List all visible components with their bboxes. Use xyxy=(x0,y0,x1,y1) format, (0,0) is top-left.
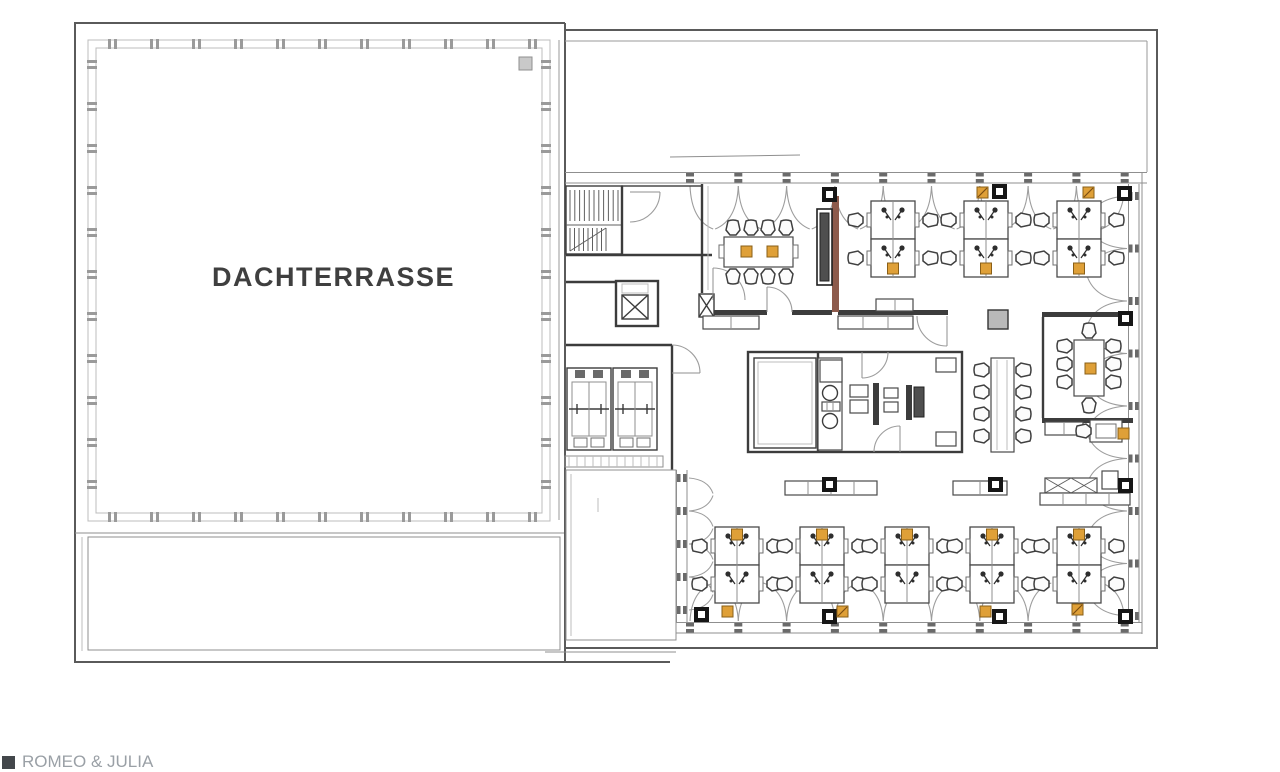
chair-icon xyxy=(1109,251,1124,265)
oven xyxy=(850,385,868,397)
chair-icon xyxy=(1106,339,1121,353)
facade-band xyxy=(676,623,1142,634)
kitchen-appliance xyxy=(914,387,924,417)
chair-icon xyxy=(1109,577,1124,591)
wc-units xyxy=(565,368,663,467)
orange-marker xyxy=(817,529,828,540)
chair-icon xyxy=(779,269,793,284)
brand-name: ROMEO & JULIA xyxy=(22,752,153,772)
orange-marker xyxy=(1074,263,1085,274)
chair-icon xyxy=(974,385,989,399)
chair-icon xyxy=(1016,363,1031,377)
chair-icon xyxy=(761,269,775,284)
column xyxy=(822,187,837,202)
chair-icon xyxy=(779,220,793,235)
chair-icon xyxy=(974,429,989,443)
chair-icon xyxy=(848,251,863,265)
oven xyxy=(850,400,868,413)
column xyxy=(992,184,1007,199)
orange-marker xyxy=(981,263,992,274)
facade-band xyxy=(565,173,1147,184)
orange-marker-hatched xyxy=(1083,187,1094,198)
core-lower-room xyxy=(566,470,676,640)
orange-marker xyxy=(767,246,778,257)
long-table-area xyxy=(974,358,1031,452)
facade-band xyxy=(1129,184,1140,622)
chair-icon xyxy=(1016,213,1031,227)
chair-icon xyxy=(726,220,740,235)
column xyxy=(822,477,837,492)
chair-icon xyxy=(923,251,938,265)
chair-icon xyxy=(1016,429,1031,443)
orange-marker xyxy=(741,246,752,257)
terrace-label: DACHTERRASSE xyxy=(212,262,455,293)
chair-icon xyxy=(848,213,863,227)
chair-icon xyxy=(1057,339,1072,353)
column xyxy=(1117,186,1132,201)
chair-icon xyxy=(1034,577,1049,591)
chair-icon xyxy=(1057,375,1072,389)
chair-icon xyxy=(692,577,707,591)
chair-icon xyxy=(947,577,962,591)
chair-icon xyxy=(1109,213,1124,227)
printer-device xyxy=(1096,424,1116,438)
chair-icon xyxy=(726,269,740,284)
chair-icon xyxy=(1109,539,1124,553)
orange-marker xyxy=(1118,428,1129,439)
chair-icon xyxy=(1034,539,1049,553)
column xyxy=(1118,478,1133,493)
orange-marker xyxy=(888,263,899,274)
printer-station xyxy=(1045,420,1122,442)
orange-marker-hatched xyxy=(977,187,988,198)
stair-flight-lower xyxy=(570,228,606,251)
chair-icon xyxy=(1016,407,1031,421)
chair-icon xyxy=(777,539,792,553)
column xyxy=(694,607,709,622)
wc-unit xyxy=(567,368,611,450)
chair-icon xyxy=(862,577,877,591)
chair-icon xyxy=(1057,357,1072,371)
stair-core xyxy=(566,186,712,255)
orange-marker xyxy=(1085,363,1096,374)
chair-icon xyxy=(777,577,792,591)
chair-icon xyxy=(923,213,938,227)
chair-icon xyxy=(744,220,758,235)
orange-marker xyxy=(902,529,913,540)
chair-icon xyxy=(1106,357,1121,371)
column xyxy=(988,477,1003,492)
orange-marker xyxy=(980,606,991,617)
chair-icon xyxy=(1034,251,1049,265)
kitchen-sink xyxy=(822,402,840,411)
chair-icon xyxy=(974,363,989,377)
orange-marker xyxy=(1074,529,1085,540)
floor-plan-drawing xyxy=(0,0,1280,767)
chair-icon xyxy=(1082,398,1096,413)
column xyxy=(1118,609,1133,624)
floor-plan-page: DACHTERRASSE ROMEO & JULIA xyxy=(0,0,1280,767)
orange-marker xyxy=(732,529,743,540)
chair-icon xyxy=(744,269,758,284)
chair-icon xyxy=(1016,251,1031,265)
chair-icon xyxy=(947,539,962,553)
chair-icon xyxy=(692,539,707,553)
chair-icon xyxy=(761,220,775,235)
chair-icon xyxy=(1106,375,1121,389)
kitchen xyxy=(748,352,962,452)
chair-icon xyxy=(1082,323,1096,338)
column xyxy=(992,609,1007,624)
chair-icon xyxy=(1034,213,1049,227)
orange-marker xyxy=(722,606,733,617)
chair-icon xyxy=(974,407,989,421)
column xyxy=(1118,311,1133,326)
chair-icon xyxy=(941,213,956,227)
stair-flight-upper xyxy=(570,190,618,221)
wood-wall-panel xyxy=(832,196,839,312)
roof-drain-marker xyxy=(519,57,532,70)
orange-marker xyxy=(987,529,998,540)
terrace-outline xyxy=(75,23,676,662)
orange-marker-hatched xyxy=(837,606,848,617)
chair-icon xyxy=(1016,385,1031,399)
chair-icon xyxy=(862,539,877,553)
orange-marker-hatched xyxy=(1072,604,1083,615)
gray-column xyxy=(988,310,1008,329)
column xyxy=(822,609,837,624)
chair-icon xyxy=(941,251,956,265)
facade-band xyxy=(677,470,688,622)
footer-brand: ROMEO & JULIA xyxy=(2,752,153,772)
wc-sill-band xyxy=(565,456,663,467)
wc-unit xyxy=(613,368,657,450)
